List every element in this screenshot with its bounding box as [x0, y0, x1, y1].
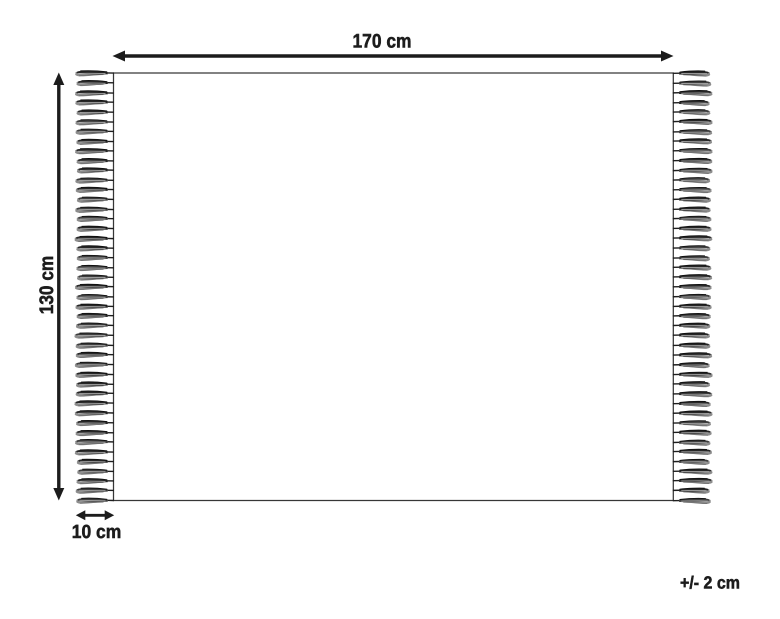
svg-text:170 cm: 170 cm	[352, 30, 411, 52]
svg-text:+/- 2 cm: +/- 2 cm	[680, 572, 740, 592]
svg-text:10 cm: 10 cm	[72, 522, 122, 543]
svg-text:130 cm: 130 cm	[36, 256, 58, 315]
